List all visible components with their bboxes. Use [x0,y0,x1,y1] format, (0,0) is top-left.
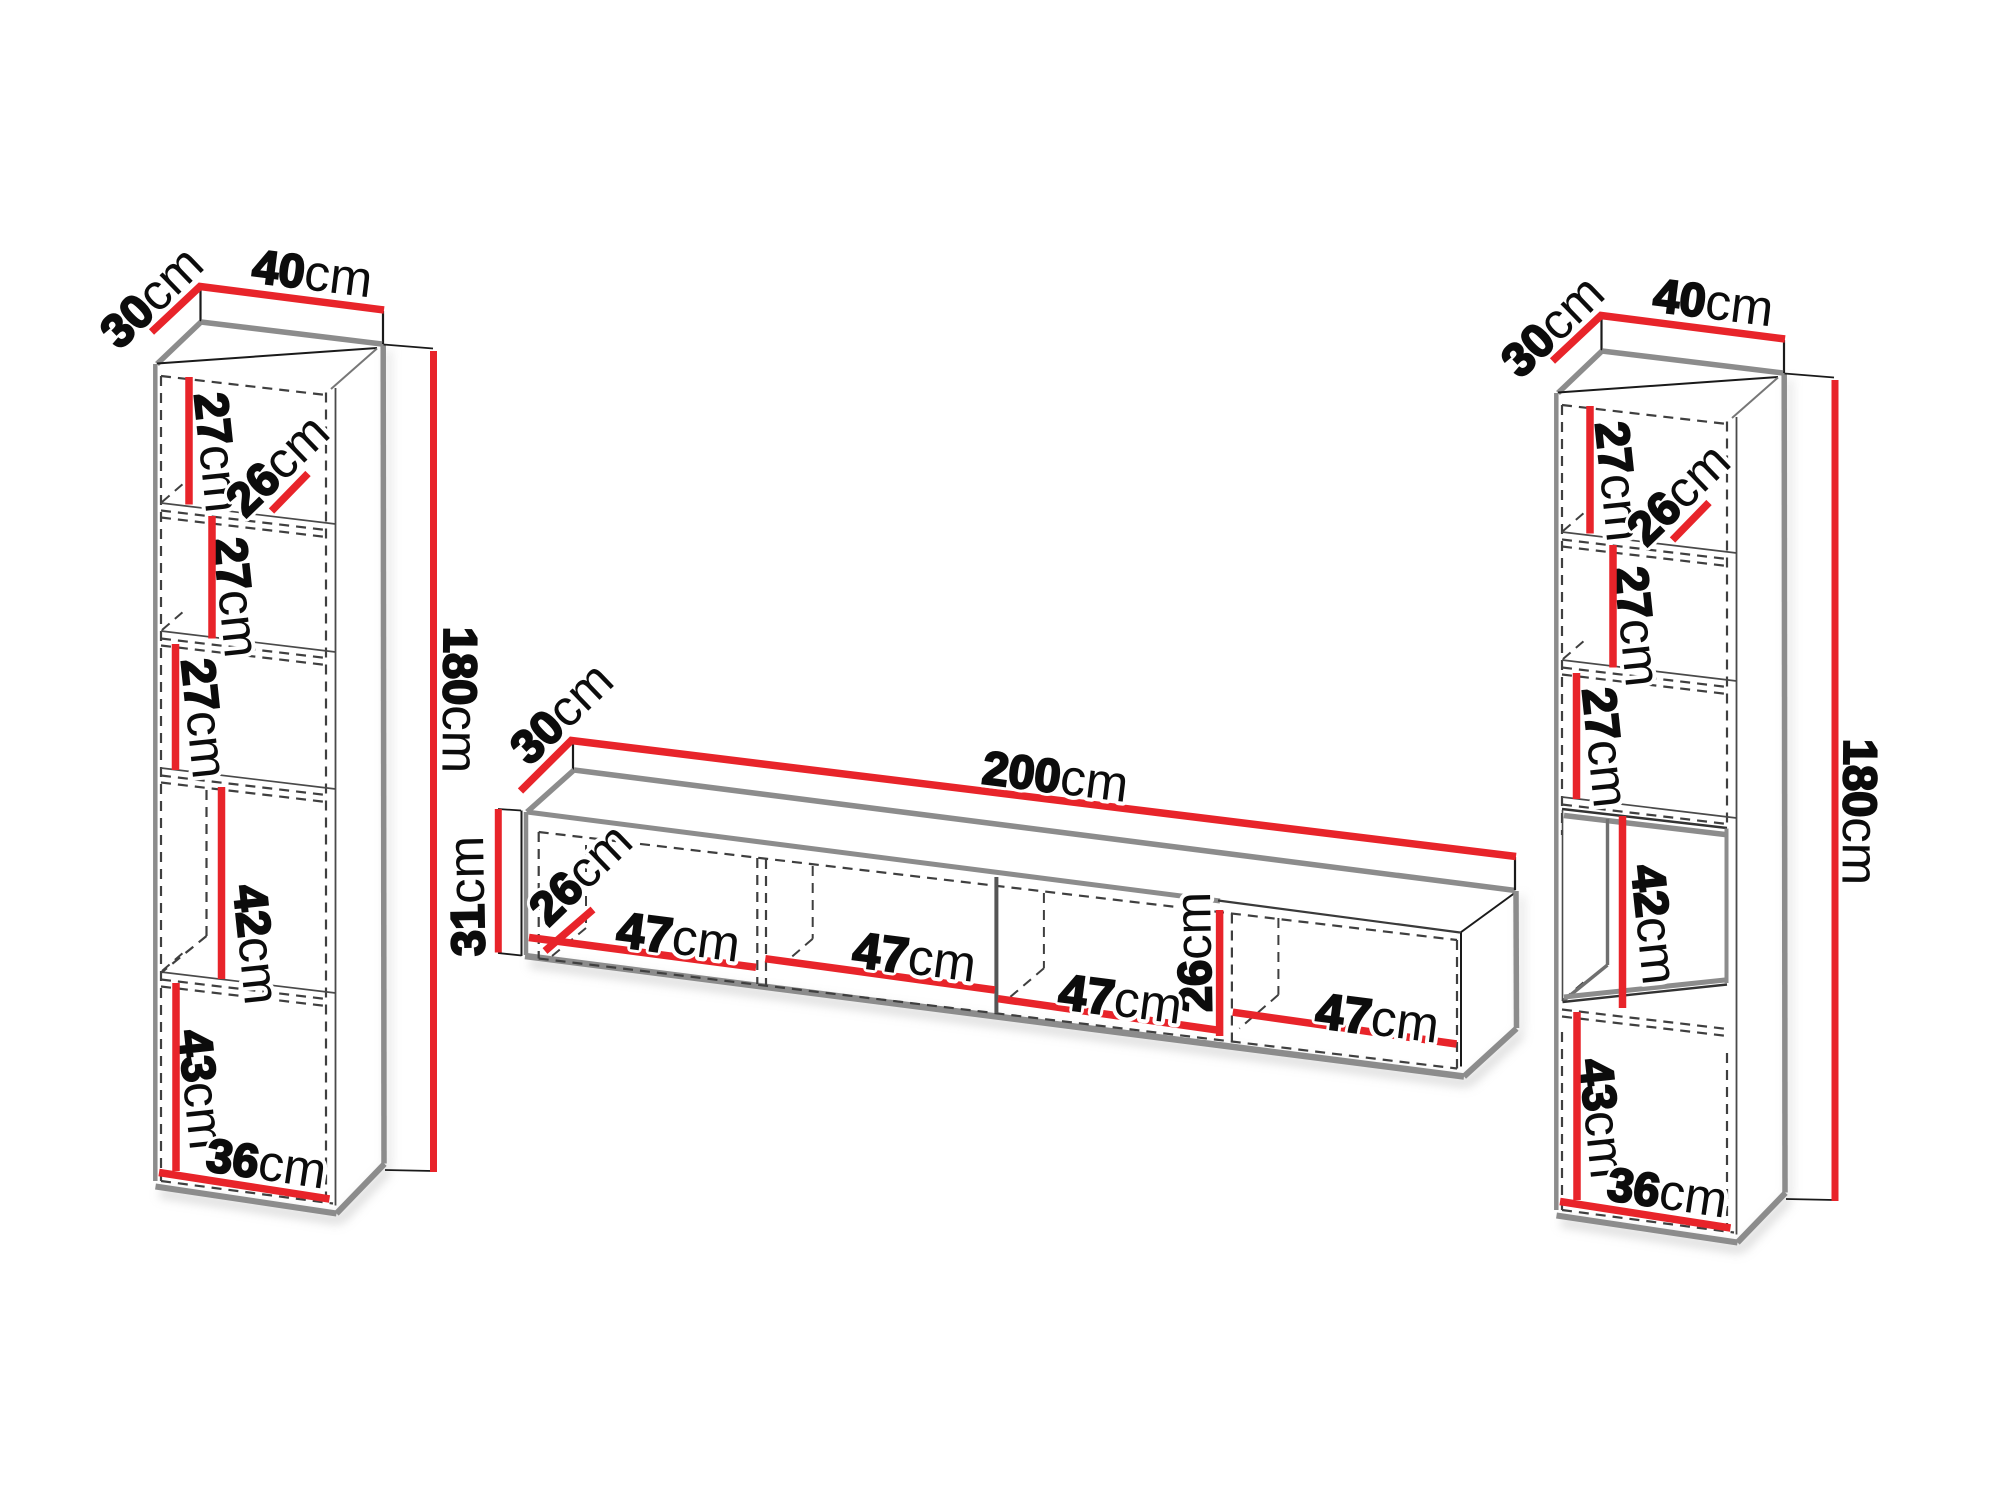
svg-text:31cm: 31cm [437,835,496,956]
svg-text:180cm: 180cm [431,627,489,774]
svg-text:180cm: 180cm [1831,739,1889,886]
